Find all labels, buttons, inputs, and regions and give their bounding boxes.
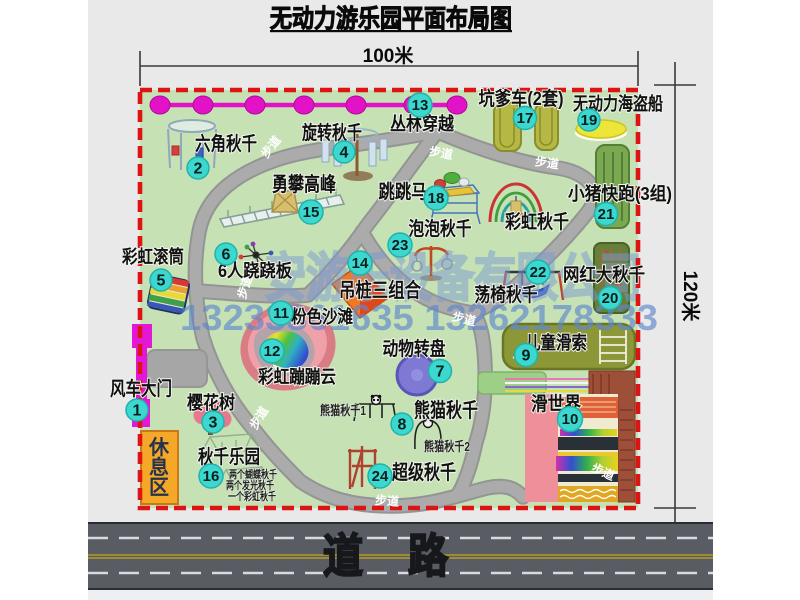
svg-text:超级秋千: 超级秋千: [391, 460, 456, 484]
svg-text:2: 2: [194, 160, 203, 177]
svg-text:两个蝴蝶秋千: 两个蝴蝶秋千: [229, 467, 277, 481]
svg-text:100米: 100米: [363, 44, 415, 67]
svg-text:1: 1: [133, 402, 142, 419]
svg-text:泡泡秋千: 泡泡秋千: [409, 217, 472, 240]
svg-text:23: 23: [392, 237, 409, 254]
svg-text:小猪快跑(3组): 小猪快跑(3组): [568, 183, 672, 204]
svg-text:熊猫秋千2: 熊猫秋千2: [424, 439, 470, 454]
svg-text:5: 5: [157, 272, 166, 289]
svg-text:彩虹蹦蹦云: 彩虹蹦蹦云: [257, 366, 336, 387]
svg-text:24: 24: [372, 468, 389, 485]
svg-text:16: 16: [203, 468, 220, 485]
svg-text:8: 8: [398, 416, 407, 433]
svg-text:6: 6: [222, 246, 231, 263]
svg-text:18: 18: [428, 190, 445, 207]
svg-text:10: 10: [562, 411, 579, 428]
svg-text:跳跳马: 跳跳马: [379, 180, 428, 203]
svg-text:13: 13: [412, 97, 429, 114]
svg-text:风车大门: 风车大门: [110, 377, 172, 400]
svg-text:12: 12: [264, 343, 281, 360]
svg-text:3: 3: [209, 414, 218, 431]
svg-text:20: 20: [602, 290, 619, 307]
svg-text:一个彩虹秋千: 一个彩虹秋千: [228, 489, 276, 503]
svg-text:旋转秋千: 旋转秋千: [301, 121, 362, 144]
svg-text:19: 19: [581, 112, 598, 129]
svg-text:休: 休: [148, 435, 170, 459]
svg-text:9: 9: [522, 347, 531, 364]
svg-text:13233861635 13262178333: 13233861635 13262178333: [180, 297, 658, 338]
svg-text:两个发光秋千: 两个发光秋千: [226, 478, 274, 492]
svg-text:六角秋千: 六角秋千: [195, 132, 257, 155]
svg-text:息: 息: [149, 455, 169, 479]
svg-text:步道: 步道: [375, 492, 400, 509]
svg-text:吊桩三组合: 吊桩三组合: [339, 278, 422, 302]
svg-text:7: 7: [436, 363, 445, 380]
svg-text:15: 15: [303, 204, 320, 221]
svg-text:22: 22: [530, 264, 547, 281]
svg-text:粉色沙滩: 粉色沙滩: [291, 306, 353, 327]
svg-text:荡椅秋千: 荡椅秋千: [475, 283, 538, 306]
svg-text:4: 4: [340, 144, 349, 161]
svg-text:动物转盘: 动物转盘: [383, 337, 446, 360]
svg-text:樱花树: 樱花树: [187, 392, 235, 413]
svg-text:勇攀高峰: 勇攀高峰: [272, 172, 336, 196]
svg-text:网红大秋千: 网红大秋千: [563, 264, 645, 285]
svg-text:21: 21: [598, 206, 615, 223]
svg-text:路: 路: [408, 530, 449, 582]
svg-text:道: 道: [323, 530, 363, 582]
svg-text:彩虹秋千: 彩虹秋千: [504, 210, 569, 233]
svg-text:熊猫秋千: 熊猫秋千: [414, 398, 478, 422]
svg-text:熊猫秋千1: 熊猫秋千1: [320, 403, 366, 418]
svg-text:17: 17: [517, 110, 534, 127]
svg-text:区: 区: [149, 477, 169, 499]
svg-text:彩虹滚筒: 彩虹滚筒: [121, 246, 184, 267]
svg-text:11: 11: [273, 305, 289, 322]
svg-text:120米: 120米: [679, 271, 702, 323]
svg-text:无动力游乐园平面布局图: 无动力游乐园平面布局图: [270, 4, 512, 33]
svg-text:14: 14: [352, 255, 369, 272]
